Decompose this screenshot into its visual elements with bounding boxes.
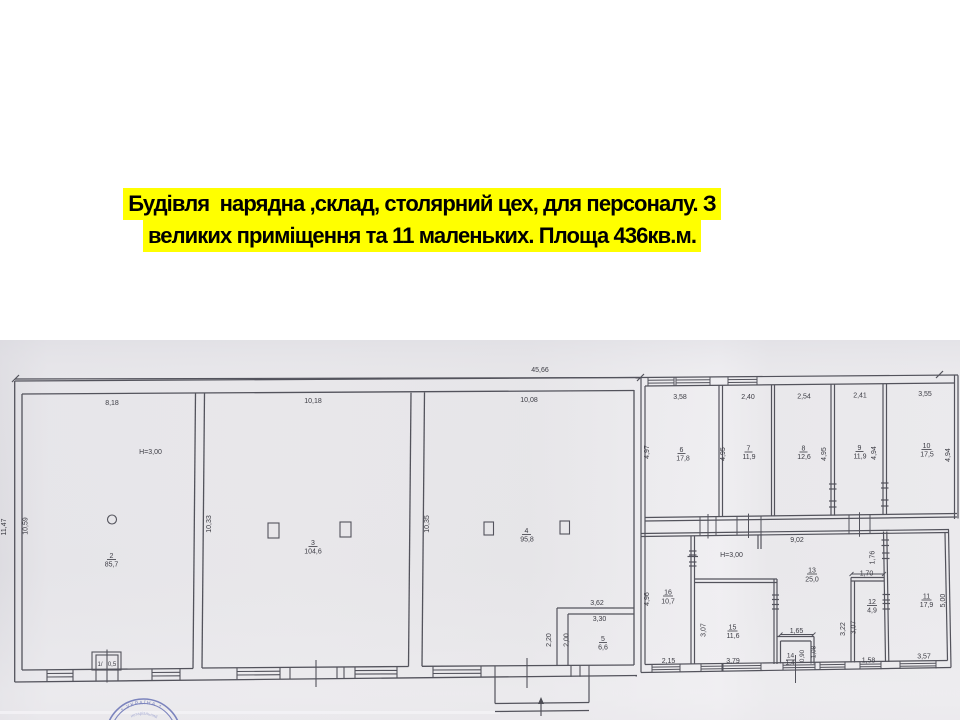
svg-text:17,5: 17,5: [920, 452, 934, 459]
svg-text:5: 5: [601, 636, 605, 643]
svg-text:2,40: 2,40: [741, 394, 755, 401]
svg-text:10,59: 10,59: [23, 517, 30, 535]
svg-text:95,8: 95,8: [520, 537, 534, 544]
svg-text:2,20: 2,20: [546, 633, 553, 647]
svg-text:7: 7: [747, 446, 751, 453]
svg-text:1,70: 1,70: [860, 571, 874, 578]
svg-text:3,07: 3,07: [701, 623, 708, 637]
svg-text:12: 12: [868, 599, 876, 606]
svg-text:3,79: 3,79: [726, 658, 740, 665]
svg-text:0,90: 0,90: [799, 649, 806, 662]
svg-text:85,7: 85,7: [105, 562, 119, 569]
svg-text:4,9: 4,9: [867, 608, 877, 615]
svg-text:3,55: 3,55: [918, 391, 932, 398]
svg-text:H=3,00: H=3,00: [139, 449, 162, 456]
svg-text:3: 3: [311, 540, 315, 547]
svg-text:17,8: 17,8: [676, 456, 690, 463]
svg-text:1,4: 1,4: [785, 660, 794, 667]
svg-text:H=3,00: H=3,00: [720, 552, 743, 559]
svg-text:3,57: 3,57: [917, 654, 931, 661]
svg-text:1,08: 1,08: [811, 645, 818, 658]
svg-text:4,95: 4,95: [720, 447, 727, 461]
svg-text:10: 10: [923, 443, 931, 450]
svg-text:0,5: 0,5: [108, 662, 117, 668]
svg-text:14: 14: [787, 653, 795, 660]
svg-text:104,6: 104,6: [304, 549, 322, 556]
svg-text:4,95: 4,95: [821, 447, 828, 461]
svg-text:5,00: 5,00: [940, 594, 947, 608]
svg-text:1/: 1/: [97, 662, 102, 668]
svg-text:11,9: 11,9: [742, 454, 755, 461]
svg-text:4: 4: [525, 528, 529, 535]
svg-text:10,08: 10,08: [520, 397, 538, 404]
svg-text:13: 13: [808, 568, 816, 575]
svg-text:15: 15: [729, 625, 737, 632]
svg-text:2,00: 2,00: [564, 633, 571, 647]
svg-text:4,94: 4,94: [871, 446, 878, 460]
svg-text:11,9: 11,9: [853, 454, 866, 461]
svg-text:4,97: 4,97: [644, 445, 651, 459]
svg-text:3,22: 3,22: [840, 622, 847, 636]
svg-text:10,33: 10,33: [206, 515, 213, 533]
svg-text:10,18: 10,18: [304, 398, 322, 405]
svg-text:1,65: 1,65: [790, 628, 804, 635]
svg-text:2: 2: [110, 553, 114, 560]
svg-text:11,47: 11,47: [1, 518, 8, 535]
svg-text:3,07: 3,07: [851, 621, 858, 635]
svg-text:2,54: 2,54: [797, 394, 811, 401]
svg-text:8: 8: [802, 446, 806, 453]
svg-text:10,7: 10,7: [661, 599, 675, 606]
svg-text:16: 16: [664, 590, 672, 597]
svg-text:6,6: 6,6: [598, 645, 608, 652]
svg-text:8,18: 8,18: [105, 400, 119, 407]
svg-text:17,9: 17,9: [920, 602, 934, 609]
svg-text:3,58: 3,58: [673, 394, 687, 401]
svg-text:3,30: 3,30: [593, 616, 607, 623]
svg-text:4,96: 4,96: [644, 592, 651, 606]
svg-text:45,66: 45,66: [531, 367, 549, 374]
svg-text:1,58: 1,58: [862, 658, 876, 665]
svg-text:2,15: 2,15: [662, 658, 676, 665]
svg-text:3,62: 3,62: [590, 600, 604, 607]
svg-text:9: 9: [858, 445, 862, 452]
svg-text:2,41: 2,41: [853, 393, 867, 400]
svg-text:25,0: 25,0: [805, 577, 819, 584]
svg-text:11: 11: [923, 594, 930, 601]
svg-text:1,76: 1,76: [870, 551, 877, 565]
svg-text:9,02: 9,02: [790, 537, 804, 544]
svg-text:10,35: 10,35: [424, 515, 431, 533]
svg-text:11,6: 11,6: [726, 633, 739, 640]
svg-text:4,94: 4,94: [945, 448, 952, 462]
svg-text:12,6: 12,6: [797, 454, 811, 461]
svg-text:6: 6: [680, 447, 684, 454]
